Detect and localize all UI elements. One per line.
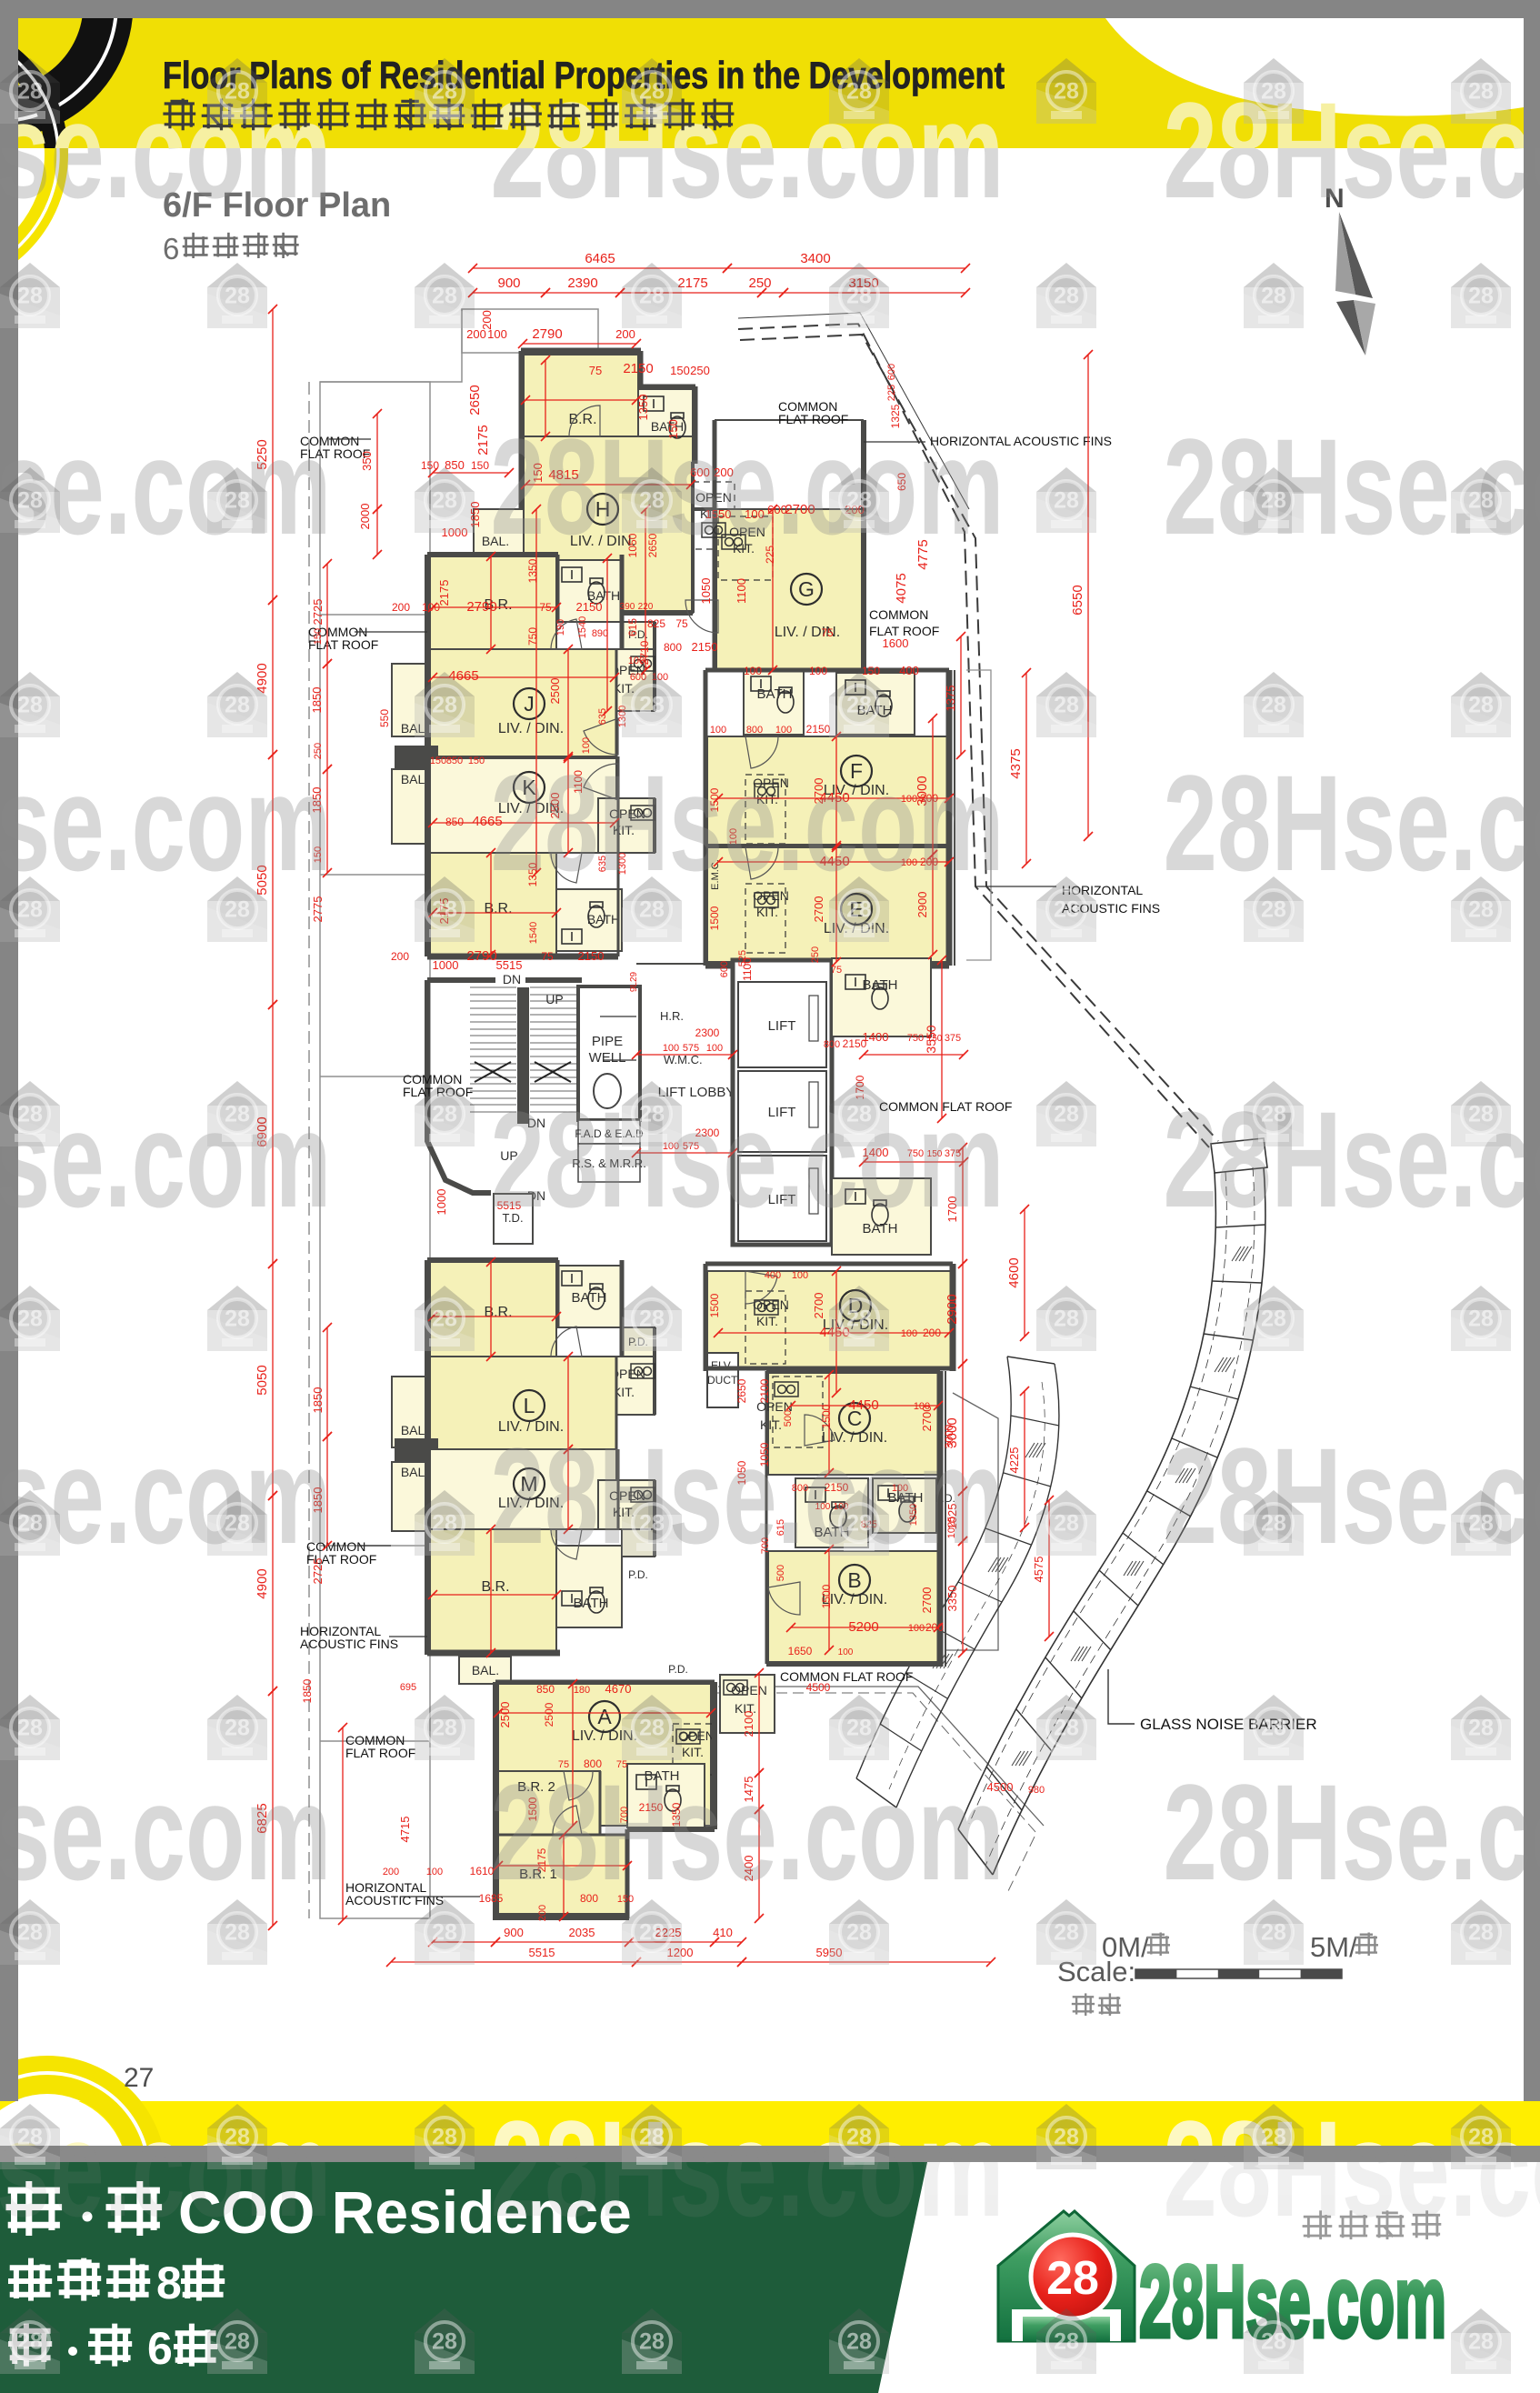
svg-text:1400: 1400 — [863, 1030, 889, 1044]
svg-text:900: 900 — [504, 1926, 524, 1939]
svg-text:DN: DN — [503, 972, 521, 986]
svg-text:4575: 4575 — [1032, 1557, 1045, 1583]
svg-text:200: 200 — [392, 601, 410, 614]
svg-text:2900: 2900 — [945, 1294, 960, 1324]
svg-text:BAL.: BAL. — [401, 772, 428, 786]
svg-text:410: 410 — [713, 1926, 733, 1939]
svg-text:850: 850 — [445, 816, 464, 828]
svg-text:3400: 3400 — [800, 251, 830, 266]
svg-text:1050: 1050 — [699, 578, 713, 605]
svg-text:4375: 4375 — [1008, 748, 1024, 778]
svg-text:WELL: WELL — [589, 1050, 626, 1066]
svg-text:4600: 4600 — [1006, 1257, 1022, 1287]
svg-text:28Hse.com: 28Hse.com — [491, 1419, 1005, 1572]
svg-text:28Hse.com: 28Hse.com — [0, 1756, 332, 1908]
svg-text:1000: 1000 — [435, 1189, 448, 1216]
svg-text:L: L — [524, 1394, 535, 1417]
svg-text:75: 75 — [675, 617, 688, 630]
svg-text:600: 600 — [719, 961, 730, 977]
svg-text:850: 850 — [536, 1683, 555, 1696]
svg-text:B.R.: B.R. — [481, 1579, 509, 1595]
svg-text:800: 800 — [824, 1039, 840, 1050]
svg-text:6550: 6550 — [1070, 585, 1085, 615]
svg-text:2700: 2700 — [920, 1587, 934, 1614]
svg-text:75: 75 — [821, 626, 834, 639]
svg-text:5515: 5515 — [496, 958, 523, 972]
svg-text:890: 890 — [592, 628, 608, 639]
svg-text:28Hse.com: 28Hse.com — [1164, 1756, 1540, 1908]
svg-text:B.R.: B.R. — [484, 901, 512, 916]
svg-text:190: 190 — [555, 619, 566, 636]
svg-text:1500: 1500 — [708, 1293, 721, 1317]
svg-text:150: 150 — [471, 459, 489, 472]
svg-text:B.R.: B.R. — [484, 1305, 512, 1320]
svg-text:800: 800 — [746, 725, 763, 736]
svg-text:6465: 6465 — [585, 251, 615, 266]
svg-text:5M/: 5M/ — [1310, 1931, 1357, 1963]
svg-text:225: 225 — [886, 385, 897, 401]
svg-text:1500: 1500 — [820, 1584, 833, 1608]
svg-text:100: 100 — [775, 725, 792, 736]
svg-text:200: 200 — [391, 950, 409, 963]
svg-text:1000: 1000 — [433, 958, 459, 972]
svg-text:1500: 1500 — [708, 906, 721, 930]
svg-text:750: 750 — [907, 1033, 924, 1044]
svg-text:850: 850 — [446, 756, 463, 766]
svg-text:1850: 1850 — [310, 687, 324, 714]
svg-text:150: 150 — [313, 628, 324, 645]
svg-text:200: 200 — [383, 1867, 399, 1877]
svg-text:2790: 2790 — [466, 948, 496, 964]
svg-text:100: 100 — [663, 1043, 679, 1054]
svg-text:100: 100 — [838, 1647, 854, 1657]
svg-text:2390: 2390 — [567, 275, 597, 291]
svg-text:635: 635 — [597, 708, 608, 725]
svg-text:KIT.: KIT. — [756, 1314, 778, 1328]
svg-text:2175: 2175 — [437, 580, 451, 606]
svg-text:ACOUSTIC FINS: ACOUSTIC FINS — [345, 1893, 444, 1907]
svg-text:28Hse.com: 28Hse.com — [491, 410, 1005, 563]
svg-text:1850: 1850 — [311, 1387, 325, 1414]
svg-text:PIPE: PIPE — [592, 1034, 623, 1049]
svg-text:4500: 4500 — [806, 1681, 831, 1694]
svg-text:150: 150 — [670, 364, 690, 377]
svg-text:100: 100 — [744, 665, 762, 677]
svg-text:2650: 2650 — [467, 385, 483, 415]
svg-text:4900: 4900 — [255, 1568, 270, 1598]
svg-text:100: 100 — [426, 1867, 443, 1877]
svg-text:2150: 2150 — [806, 723, 831, 736]
svg-text:75: 75 — [541, 950, 554, 963]
svg-text:28Hse.com: 28Hse.com — [491, 746, 1005, 899]
svg-text:2100: 2100 — [758, 1378, 771, 1403]
svg-text:BATH: BATH — [863, 977, 898, 993]
svg-text:2150: 2150 — [692, 640, 718, 654]
svg-text:150: 150 — [430, 756, 446, 766]
svg-text:4670: 4670 — [605, 1682, 632, 1696]
svg-text:2790: 2790 — [466, 599, 496, 615]
svg-text:1850: 1850 — [301, 1678, 314, 1703]
svg-text:100: 100 — [628, 656, 645, 666]
svg-text:250: 250 — [810, 946, 821, 963]
svg-text:200: 200 — [480, 310, 494, 330]
svg-text:5050: 5050 — [255, 1365, 270, 1395]
svg-text:850: 850 — [445, 458, 465, 472]
svg-text:75: 75 — [831, 965, 842, 976]
svg-text:200: 200 — [615, 327, 635, 341]
svg-text:75: 75 — [539, 601, 552, 614]
svg-text:1100: 1100 — [735, 578, 748, 604]
svg-text:2790: 2790 — [532, 326, 562, 342]
svg-text:1375: 1375 — [944, 686, 957, 712]
svg-text:2650: 2650 — [735, 1378, 748, 1403]
svg-text:2500: 2500 — [548, 678, 562, 705]
svg-text:DUCT: DUCT — [707, 1374, 738, 1387]
svg-text:615: 615 — [626, 618, 639, 636]
svg-text:2500: 2500 — [498, 1702, 512, 1728]
svg-text:4715: 4715 — [398, 1817, 412, 1843]
svg-text:100: 100 — [809, 665, 827, 677]
svg-text:COMMON FLAT ROOF: COMMON FLAT ROOF — [780, 1669, 913, 1684]
svg-text:200: 200 — [925, 1621, 944, 1634]
svg-text:75: 75 — [589, 364, 602, 377]
svg-text:UP: UP — [545, 992, 563, 1006]
svg-text:150: 150 — [862, 665, 880, 677]
svg-text:150: 150 — [421, 459, 439, 472]
svg-text:825: 825 — [647, 617, 665, 630]
svg-text:180: 180 — [574, 1685, 590, 1696]
svg-text:100: 100 — [901, 1328, 917, 1339]
svg-text:H.R.: H.R. — [660, 1009, 684, 1023]
svg-text:575: 575 — [683, 1043, 699, 1054]
svg-text:2700: 2700 — [812, 1293, 825, 1319]
svg-text:5200: 5200 — [848, 1619, 878, 1635]
svg-text:LIV. / DIN.: LIV. / DIN. — [498, 721, 564, 736]
svg-text:2300: 2300 — [695, 1026, 720, 1039]
svg-text:1650: 1650 — [788, 1645, 813, 1657]
svg-text:2725: 2725 — [311, 599, 325, 626]
svg-text:9L29: 9L29 — [629, 971, 639, 992]
svg-text:BAL.: BAL. — [472, 1663, 499, 1677]
svg-text:400: 400 — [899, 664, 919, 677]
svg-text:G: G — [798, 577, 815, 601]
svg-text:220: 220 — [638, 602, 654, 612]
svg-text:550: 550 — [378, 709, 391, 727]
svg-text:250: 250 — [748, 275, 771, 291]
svg-text:1540: 1540 — [577, 616, 588, 638]
svg-text:27: 27 — [124, 2063, 154, 2093]
svg-text:2000: 2000 — [358, 504, 372, 530]
svg-text:350: 350 — [360, 451, 374, 471]
svg-text:2035: 2035 — [569, 1926, 595, 1939]
svg-text:100: 100 — [908, 1623, 925, 1634]
svg-text:28Hse.com: 28Hse.com — [0, 746, 332, 899]
svg-text:2150: 2150 — [576, 600, 603, 614]
svg-text:28Hse.com: 28Hse.com — [491, 1083, 1005, 1236]
svg-text:5515: 5515 — [529, 1946, 555, 1959]
svg-text:6: 6 — [147, 2323, 173, 2374]
svg-text:1600: 1600 — [883, 636, 909, 650]
svg-text:8: 8 — [156, 2258, 182, 2308]
svg-text:FLAT ROOF: FLAT ROOF — [345, 1746, 415, 1760]
svg-text:28Hse.com: 28Hse.com — [491, 1756, 1005, 1908]
svg-text:2175: 2175 — [475, 425, 491, 455]
svg-text:100: 100 — [706, 1043, 723, 1054]
svg-text:375: 375 — [945, 1033, 961, 1044]
svg-text:28: 28 — [1046, 2252, 1099, 2305]
svg-text:4225: 4225 — [1007, 1447, 1021, 1474]
svg-text:COMMON: COMMON — [869, 607, 928, 622]
svg-text:100: 100 — [792, 1270, 808, 1281]
svg-text:6: 6 — [163, 232, 179, 265]
svg-text:3350: 3350 — [945, 1586, 959, 1612]
svg-text:J: J — [524, 692, 535, 716]
svg-text:525: 525 — [737, 950, 748, 966]
svg-text:4075: 4075 — [894, 573, 909, 603]
svg-text:P.D.: P.D. — [668, 1663, 688, 1676]
svg-text:4450: 4450 — [848, 1397, 878, 1413]
svg-text:BAL.: BAL. — [401, 1423, 428, 1437]
svg-text:2100: 2100 — [742, 1711, 755, 1737]
svg-text:1540: 1540 — [528, 922, 539, 944]
svg-text:695: 695 — [400, 1682, 416, 1693]
svg-text:2775: 2775 — [311, 896, 325, 923]
svg-text:100: 100 — [710, 725, 726, 736]
svg-text:28Hse.com: 28Hse.com — [1164, 746, 1540, 899]
svg-text:BAL.: BAL. — [401, 1465, 428, 1479]
svg-text:900: 900 — [497, 275, 520, 291]
svg-text:2150: 2150 — [623, 361, 653, 376]
svg-text:A: A — [597, 1705, 612, 1728]
svg-text:390: 390 — [620, 602, 635, 612]
svg-text:2500: 2500 — [543, 1702, 555, 1727]
svg-text:750: 750 — [526, 627, 539, 646]
svg-text:600: 600 — [886, 364, 897, 380]
svg-text:2175: 2175 — [677, 275, 707, 291]
svg-text:200: 200 — [923, 1327, 941, 1339]
svg-text:ACOUSTIC FINS: ACOUSTIC FINS — [300, 1637, 398, 1651]
svg-text:3550: 3550 — [924, 1025, 938, 1053]
svg-text:2150: 2150 — [578, 949, 605, 963]
svg-text:250: 250 — [690, 364, 710, 377]
svg-text:LIFT: LIFT — [768, 1018, 796, 1034]
svg-text:980: 980 — [1028, 1785, 1045, 1796]
svg-text:400: 400 — [765, 1270, 781, 1281]
svg-text:2700: 2700 — [812, 896, 825, 923]
svg-text:BATH: BATH — [757, 686, 793, 702]
svg-text:800: 800 — [664, 641, 682, 654]
svg-text:150: 150 — [468, 756, 485, 766]
